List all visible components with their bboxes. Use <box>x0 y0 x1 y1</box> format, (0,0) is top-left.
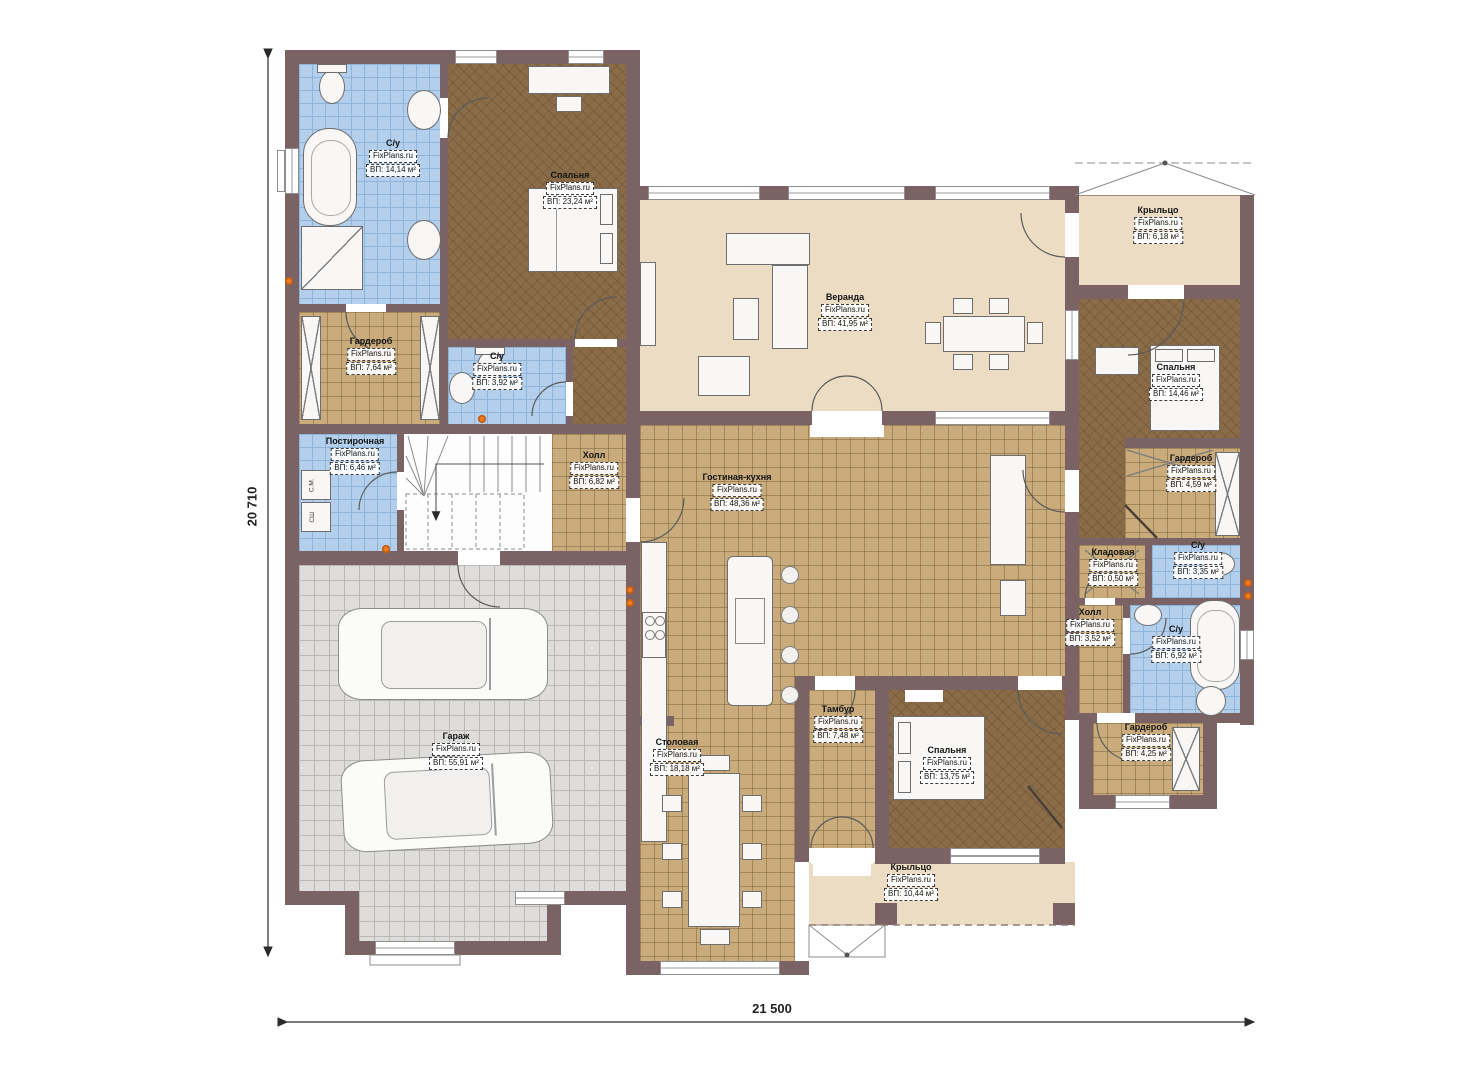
wall <box>285 551 626 565</box>
bar-stool <box>781 646 799 664</box>
label-bathroom-master: С/у FixPlans.ru ВП: 14,14 м² <box>366 138 420 177</box>
sofa <box>772 265 808 349</box>
door-opening <box>1065 213 1079 257</box>
vent-marker <box>478 415 486 423</box>
bathtub-inner <box>1197 610 1235 682</box>
wall <box>1125 438 1240 448</box>
room-stairs <box>404 434 552 551</box>
door-opening <box>1123 618 1130 654</box>
dining-table <box>688 773 740 927</box>
bathtub-inner <box>311 140 351 216</box>
chair <box>700 755 730 771</box>
door-opening <box>1085 598 1115 605</box>
burner <box>655 616 665 626</box>
label-hall-2: Холл FixPlans.ru ВП: 3,52 м² <box>1065 607 1115 646</box>
sink <box>407 220 441 260</box>
vent-marker <box>626 586 634 594</box>
window <box>1115 795 1170 809</box>
wardrobe-cabinet <box>1215 452 1240 536</box>
label-laundry: Постирочная FixPlans.ru ВП: 6,46 м² <box>326 436 384 475</box>
label-bathroom-3: С/у FixPlans.ru ВП: 3,35 м² <box>1173 540 1223 579</box>
vent-marker <box>1244 579 1252 587</box>
chair <box>925 322 941 344</box>
toilet <box>319 70 345 104</box>
floor-plan: С.М. СШ <box>0 0 1474 1080</box>
burner <box>645 616 655 626</box>
burner <box>655 630 665 640</box>
chair <box>953 354 973 370</box>
dimension-width: 21 500 <box>732 1002 812 1015</box>
window <box>515 891 565 905</box>
door-opening <box>346 304 386 312</box>
chair <box>662 795 682 812</box>
wall <box>1145 545 1152 598</box>
label-garage: Гараж FixPlans.ru ВП: 55,91 м² <box>429 731 483 770</box>
wardrobe-cabinet <box>1172 727 1200 791</box>
chair <box>556 96 582 112</box>
pillow <box>600 194 613 225</box>
window <box>455 50 497 64</box>
pillow <box>1155 349 1183 362</box>
chair <box>953 298 973 314</box>
window <box>285 148 299 194</box>
door-opening <box>1065 470 1079 512</box>
label-tambour: Тамбур FixPlans.ru ВП: 7,48 м² <box>813 704 863 743</box>
label-wardrobe-1: Гардероб FixPlans.ru ВП: 7,64 м² <box>346 336 396 375</box>
car-roof <box>381 621 487 690</box>
door-opening <box>566 382 573 416</box>
console-table <box>640 262 656 346</box>
room-hall-ext <box>1079 438 1125 538</box>
window <box>935 411 1050 425</box>
door-opening <box>440 98 448 138</box>
door-opening <box>458 551 500 565</box>
label-hall-1: Холл FixPlans.ru ВП: 6,82 м² <box>569 450 619 489</box>
window <box>1240 630 1254 660</box>
car-roof <box>383 766 492 840</box>
pillow <box>898 761 911 793</box>
door-opening <box>812 411 882 425</box>
label-bedroom-3: Спальня FixPlans.ru ВП: 14,46 м² <box>1149 362 1203 401</box>
sofa <box>990 455 1026 565</box>
window <box>375 941 455 955</box>
pillow <box>1187 349 1215 362</box>
label-dining: Столовая FixPlans.ru ВП: 18,18 м² <box>650 737 704 776</box>
window <box>1065 310 1079 360</box>
chair <box>989 354 1009 370</box>
wall <box>795 676 809 862</box>
car <box>338 608 548 700</box>
door-opening <box>1018 676 1062 690</box>
window <box>648 186 760 200</box>
car-windshield <box>489 618 491 690</box>
nightstand <box>1095 347 1139 375</box>
wardrobe-cabinet <box>301 316 321 420</box>
toilet-tank <box>317 64 347 73</box>
coffee-table <box>733 298 759 340</box>
toilet <box>1134 604 1162 626</box>
burner <box>645 630 655 640</box>
window <box>788 186 905 200</box>
window <box>660 961 780 975</box>
window <box>935 186 1050 200</box>
shower <box>301 226 363 290</box>
porch-pillar <box>875 903 897 925</box>
door-opening <box>397 472 404 510</box>
sink <box>449 372 475 404</box>
door-opening <box>575 339 617 347</box>
chair <box>742 843 762 860</box>
bar-stool <box>781 606 799 624</box>
dining-table <box>943 316 1025 352</box>
sink <box>1196 686 1226 716</box>
sofa <box>726 233 810 265</box>
wall <box>285 424 626 434</box>
sink <box>407 90 441 130</box>
label-bathroom-4: С/у FixPlans.ru ВП: 6,92 м² <box>1151 624 1201 663</box>
vent-marker <box>382 545 390 553</box>
door-opening <box>626 498 640 542</box>
pillow <box>898 722 911 754</box>
porch-pillar <box>1053 903 1075 925</box>
wall <box>875 690 889 862</box>
vent-marker <box>626 599 634 607</box>
door-sill <box>813 864 871 876</box>
side-table <box>1000 580 1026 616</box>
dryer-label: СШ <box>310 512 317 523</box>
canopy-top-right <box>1075 161 1255 196</box>
vent-marker <box>285 277 293 285</box>
washing-machine-label: С.М. <box>310 478 317 492</box>
window <box>568 50 604 64</box>
label-wardrobe-3: Гардероб FixPlans.ru ВП: 4,25 м² <box>1121 722 1171 761</box>
island-sink <box>735 598 765 644</box>
chair <box>1027 322 1043 344</box>
chair <box>742 891 762 908</box>
chair <box>662 891 682 908</box>
window <box>950 848 1040 864</box>
wardrobe-cabinet <box>420 316 440 420</box>
label-bathroom-2: С/у FixPlans.ru ВП: 3,92 м² <box>472 351 522 390</box>
desk <box>528 66 610 94</box>
label-porch-bottom: Крыльцо FixPlans.ru ВП: 10,44 м² <box>884 862 938 901</box>
door-sill <box>810 425 884 437</box>
label-porch-top: Крыльцо FixPlans.ru ВП: 6,18 м² <box>1133 205 1183 244</box>
vent-marker <box>1244 592 1252 600</box>
label-storage: Кладовая FixPlans.ru ВП: 0,50 м² <box>1088 547 1138 586</box>
wall <box>1203 713 1217 795</box>
chair <box>662 843 682 860</box>
pillow <box>600 233 613 264</box>
door-opening <box>811 848 873 864</box>
door-opening <box>1128 285 1184 299</box>
label-living-kitchen: Гостиная-кухня FixPlans.ru ВП: 48,36 м² <box>703 472 772 511</box>
window-sill <box>277 150 285 192</box>
label-wardrobe-2: Гардероб FixPlans.ru ВП: 4,59 м² <box>1166 453 1216 492</box>
armchair <box>698 356 750 396</box>
wall-niche <box>905 690 943 702</box>
door-opening <box>815 676 855 690</box>
dimension-height: 20 710 <box>246 471 259 543</box>
label-veranda: Веранда FixPlans.ru ВП: 41,95 м² <box>818 292 872 331</box>
chair <box>989 298 1009 314</box>
label-bedroom-2: Спальня FixPlans.ru ВП: 13,75 м² <box>920 745 974 784</box>
wall <box>440 304 448 424</box>
wall <box>1079 713 1093 795</box>
bar-stool <box>781 566 799 584</box>
chair <box>700 929 730 945</box>
chair <box>742 795 762 812</box>
bar-stool <box>781 686 799 704</box>
room-corridor-1 <box>573 347 626 424</box>
label-bedroom-1: Спальня FixPlans.ru ВП: 23,24 м² <box>543 170 597 209</box>
